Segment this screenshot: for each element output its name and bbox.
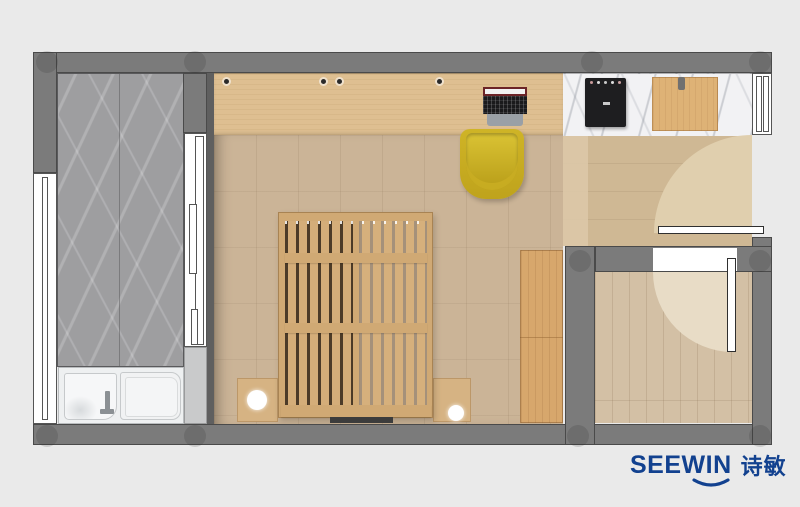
window-pane xyxy=(756,76,762,132)
bed-foot-rail xyxy=(281,405,431,417)
brand-swoosh-icon xyxy=(691,478,731,489)
column-mark xyxy=(749,250,771,272)
bathtub-faucet xyxy=(105,391,110,411)
bathroom-partition-wall xyxy=(183,73,207,133)
column-mark xyxy=(569,250,591,272)
bed-slats-right xyxy=(359,221,427,409)
window-left-mullion xyxy=(42,177,48,420)
column-mark xyxy=(567,425,589,447)
bed-center-rail xyxy=(353,221,359,409)
hallway-threshold-strip xyxy=(563,135,588,246)
column-mark xyxy=(184,51,206,73)
brand-wordmark-cjk: 诗敏 xyxy=(741,456,787,478)
bathtub-basin-rim xyxy=(125,377,178,417)
column-mark xyxy=(749,51,771,73)
window-pane xyxy=(763,76,769,132)
column-mark xyxy=(749,425,771,447)
cooktop-knob xyxy=(618,81,621,84)
bed-cross-rail xyxy=(285,323,427,333)
cabinet-knob xyxy=(321,79,326,84)
bed-slats-left xyxy=(285,221,353,409)
bedside-lamp-left xyxy=(247,390,267,410)
column-mark xyxy=(581,51,603,73)
bed-foot-shadow xyxy=(330,417,393,423)
column-mark xyxy=(36,51,58,73)
bathtub xyxy=(58,367,184,424)
floor-plan-render: SEEWIN 诗敏 xyxy=(0,0,800,507)
entry-door-leaf xyxy=(658,226,764,234)
bathroom-low-wall xyxy=(184,347,207,424)
column-mark xyxy=(184,425,206,447)
bed-frame xyxy=(278,212,433,418)
bathtub-faucet-base xyxy=(100,409,114,414)
laptop-palm-rest xyxy=(487,114,523,126)
bathroom-marble-floor xyxy=(57,73,184,367)
cabinet-knob xyxy=(337,79,342,84)
cooktop-display xyxy=(603,102,610,105)
bed-cross-rail xyxy=(285,253,427,263)
inner-door-leaf xyxy=(727,258,736,352)
cooktop-knob xyxy=(590,81,593,84)
window-left xyxy=(33,173,57,424)
brand-logo: SEEWIN 诗敏 xyxy=(630,453,787,478)
bathtub-basin-section xyxy=(120,372,181,420)
column-mark xyxy=(36,425,58,447)
desk-chair-seat xyxy=(466,133,518,190)
outer-wall-bottom xyxy=(33,424,772,445)
cutting-board xyxy=(652,77,718,131)
brand-wordmark-latin: SEEWIN xyxy=(630,453,732,478)
wardrobe xyxy=(520,250,563,423)
laptop-screen xyxy=(483,87,527,96)
inner-room-doorway xyxy=(653,248,737,271)
shower-sliding-door xyxy=(184,133,207,347)
partition-track-wall xyxy=(207,73,214,424)
inner-room-wall-left xyxy=(565,246,595,445)
cooktop-knob xyxy=(611,81,614,84)
bedside-lamp-right xyxy=(448,405,464,421)
cooktop-knob xyxy=(604,81,607,84)
cabinet-knob xyxy=(224,79,229,84)
outer-wall-top xyxy=(33,52,772,73)
sliding-door-panel xyxy=(189,204,197,274)
window-top-right xyxy=(752,73,772,135)
cooktop xyxy=(585,78,626,127)
sliding-door-panel xyxy=(191,309,198,345)
cooktop-knob xyxy=(597,81,600,84)
cabinet-knob xyxy=(437,79,442,84)
desk-chair-yellow xyxy=(460,129,524,199)
laptop-keyboard xyxy=(483,96,527,114)
cutting-board-handle xyxy=(678,77,685,90)
